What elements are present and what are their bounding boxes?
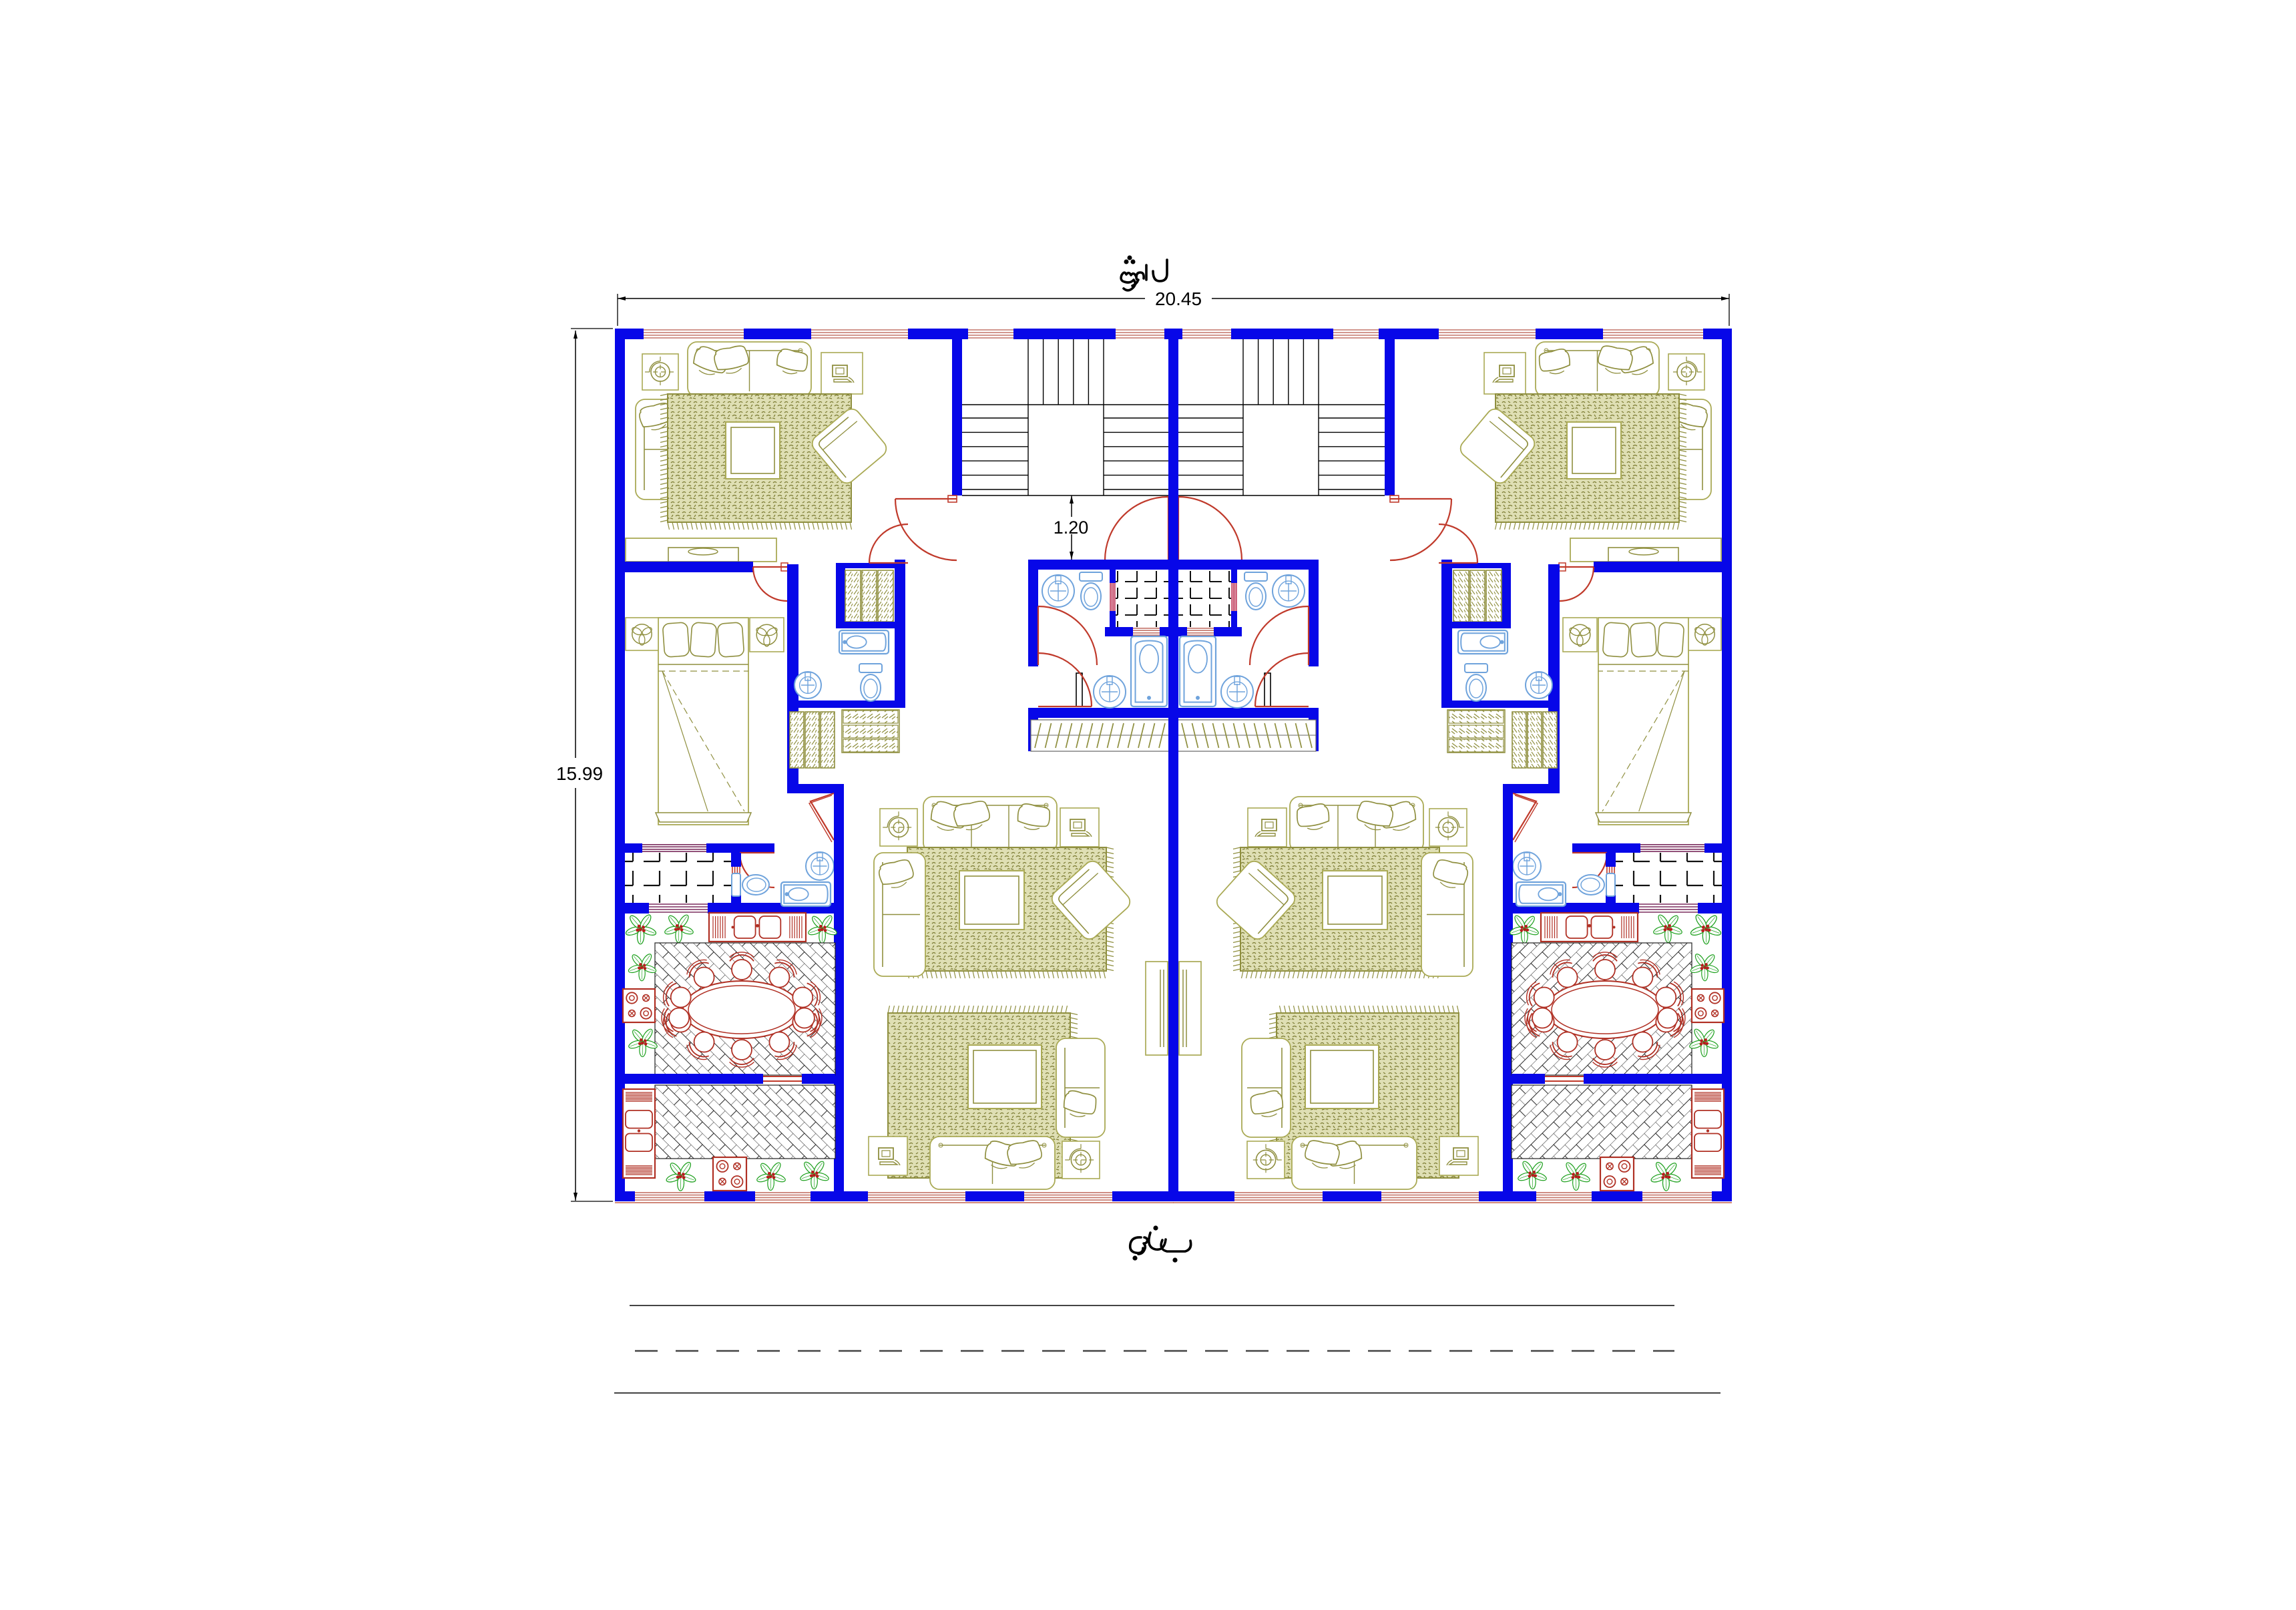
svg-text:15.99: 15.99: [556, 763, 603, 784]
svg-text:1.20: 1.20: [1054, 518, 1089, 538]
svg-text:20.45: 20.45: [1155, 288, 1202, 309]
